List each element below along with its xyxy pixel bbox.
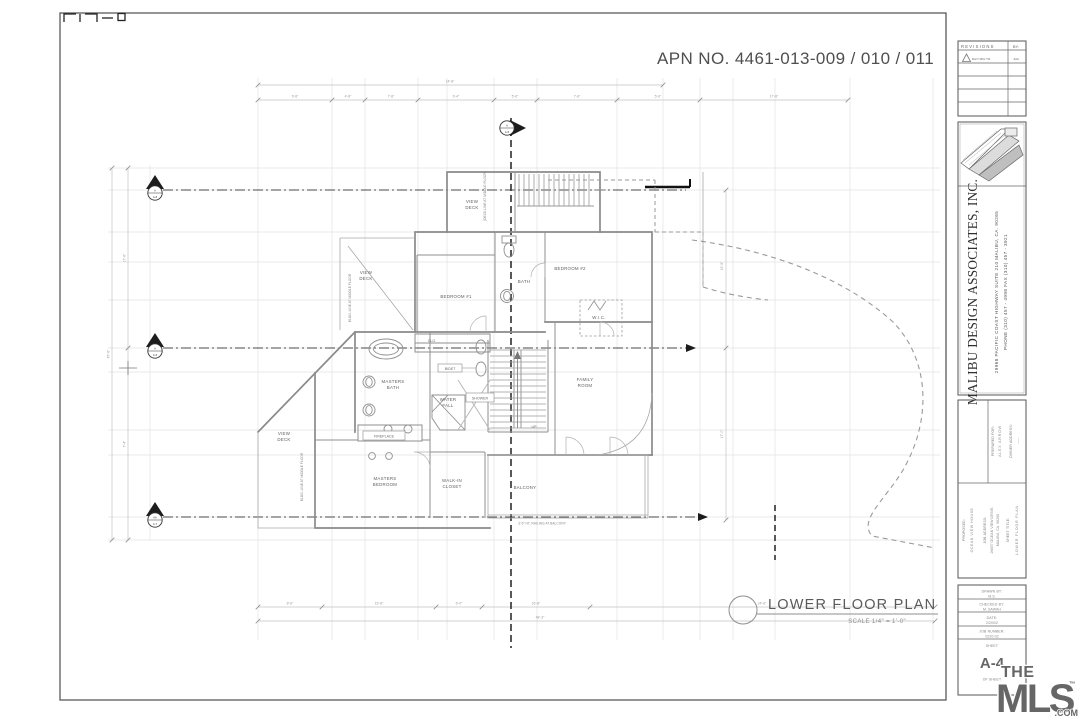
plan-scale: SCALE 1/4" = 1'-0" bbox=[848, 619, 906, 625]
owner-address-value: ----- bbox=[1016, 437, 1020, 444]
dim-right-2: 17'-0" bbox=[720, 429, 724, 438]
stairs-top bbox=[515, 172, 594, 232]
dim-bot-4: 16'-8" bbox=[532, 601, 541, 605]
dim-left-2: 7'-4" bbox=[123, 440, 127, 448]
center-cross bbox=[119, 361, 137, 375]
dim-bot-2: 15'-8" bbox=[375, 601, 384, 605]
label-masters-bath-a: MASTERS bbox=[382, 379, 405, 384]
section-marker-1: A A-8 bbox=[146, 175, 164, 200]
dim-top-overall: 14'-8" bbox=[446, 80, 455, 84]
drawn-by-value: M.S. bbox=[988, 595, 995, 599]
exterior-walls bbox=[258, 172, 652, 528]
label-balcony: BALCONY bbox=[514, 485, 537, 490]
dim-left-1: 17'-6" bbox=[123, 253, 127, 262]
label-bidet: BIDET bbox=[445, 367, 456, 371]
label-view-deck-3a: VIEW bbox=[278, 431, 291, 436]
note-bldg-line-2: BLDG. LINE AT MIDDLE FLOOR bbox=[300, 452, 304, 501]
job-number-value: 0220-02 bbox=[985, 635, 998, 639]
label-view-deck-1b: DECK bbox=[465, 205, 478, 210]
dim-bot-1: 8'-6" bbox=[287, 601, 295, 605]
dim-bottom-overall: 48'-3" bbox=[536, 615, 545, 619]
mls-logo-com: .COM bbox=[1055, 708, 1079, 718]
owner-address-label: OWNER ADDRESS: bbox=[1009, 424, 1013, 458]
label-walk-in-closet-b: CLOSET bbox=[442, 484, 461, 489]
marker1-letter: A bbox=[154, 189, 156, 193]
firm-logo-graphic bbox=[961, 128, 1023, 181]
dim-bot-3: 6'-0" bbox=[456, 601, 464, 605]
dim-top-3: 7'-8" bbox=[388, 94, 396, 98]
note-railing: 3'-6" HT. RAILING AT BALCONY bbox=[518, 522, 567, 526]
marker2-sheet: A-6 bbox=[153, 353, 158, 357]
marker3-sheet: A-7 bbox=[153, 522, 158, 526]
firm-phone: PHONE (310) 457 - 4998 FAX (310) 457 - 3… bbox=[1003, 234, 1008, 350]
revisions-table: REVISIONS BY: DAY/ MO/ YR JHA bbox=[958, 41, 1026, 116]
marker-top-sheet: A-5 bbox=[505, 130, 510, 134]
label-family-room-b: ROOM bbox=[578, 383, 593, 388]
dim-top-7: 5'-6" bbox=[655, 94, 663, 98]
stairs-middle bbox=[490, 350, 546, 428]
dim-top-2: 4'-8" bbox=[345, 94, 353, 98]
dim-top-4: 9'-4" bbox=[453, 94, 461, 98]
sheet-title-label: SHEET TITLE: bbox=[1006, 518, 1010, 543]
label-view-deck-2a: VIEW bbox=[360, 270, 373, 275]
revision-row1-by: JHA bbox=[1013, 57, 1019, 61]
dim-top-6: 7'-8" bbox=[574, 94, 582, 98]
marker2-letter: A bbox=[154, 347, 156, 351]
label-masters-bedroom-b: BEDROOM bbox=[373, 482, 398, 487]
firm-address: 29968 PACIFIC COAST HIGHWAY SUITE 210 MA… bbox=[994, 211, 999, 374]
revisions-by-header: BY: bbox=[1013, 44, 1019, 49]
revision-row1-date: DAY/ MO/ YR bbox=[972, 57, 991, 61]
stair-direction-arrow bbox=[514, 351, 521, 359]
label-view-deck-1a: VIEW bbox=[466, 199, 479, 204]
note-deck-line: (DECK LINE AT MIDDLE FLOOR) bbox=[483, 171, 487, 221]
label-bedroom-1: BEDROOM #1 bbox=[440, 294, 472, 299]
marker-top-letter: A bbox=[506, 124, 508, 128]
dim-top-5: 5'-6" bbox=[512, 94, 520, 98]
label-water-fall-a: WATER bbox=[440, 397, 457, 402]
date-value: 2/20/02 bbox=[986, 621, 998, 625]
section-marker-top: A A-5 bbox=[500, 120, 526, 136]
dimensions-top: 14'-8" 9'-8" 4'-8" 7'-8" 9'-4" 5'-6" 7'-… bbox=[256, 80, 851, 103]
drawing-sheet: APN NO. 4461-013-009 / 010 / 011 14'-8" … bbox=[0, 0, 1080, 720]
marker3-letter: AA bbox=[153, 516, 157, 520]
drawn-by-label: DRAWN BY: bbox=[982, 590, 1003, 594]
revisions-title: REVISIONS bbox=[961, 44, 995, 49]
dim-top-8: 17'-8" bbox=[770, 94, 779, 98]
mls-logo: THE MLS ™ .COM bbox=[996, 664, 1078, 720]
section-marker-3: AA A-7 bbox=[146, 502, 164, 527]
tag-boxes: FIREPLACE SHOWER BIDET bbox=[363, 364, 494, 440]
label-fireplace: FIREPLACE bbox=[374, 434, 395, 438]
label-wic: W.I.C. bbox=[592, 315, 605, 320]
label-view-deck-3b: DECK bbox=[277, 437, 290, 442]
site-dashed-lines bbox=[692, 240, 935, 548]
apn-number: APN NO. 4461-013-009 / 010 / 011 bbox=[657, 49, 934, 68]
clothes-rod-icon bbox=[588, 301, 606, 310]
prepared-for-label: PREPARED FOR: bbox=[991, 426, 995, 456]
label-up: UP bbox=[532, 425, 538, 429]
label-shower: SHOWER bbox=[472, 396, 489, 400]
label-family-room-a: FAMILY bbox=[577, 377, 594, 382]
section-marker-2: A A-6 bbox=[146, 333, 164, 358]
registration-marks bbox=[64, 14, 125, 23]
section-lines bbox=[163, 118, 708, 648]
dimensions-right: 15'-9" 17'-0" bbox=[720, 188, 728, 523]
proposed-value: OCEAN VIEW HOUSE bbox=[970, 508, 974, 553]
label-masters-bath-b: BATH bbox=[387, 385, 399, 390]
marker1-sheet: A-8 bbox=[153, 195, 158, 199]
prepared-for-value: ALEX ARROW bbox=[998, 425, 1002, 457]
label-bedroom-2: BEDROOM #2 bbox=[554, 266, 586, 271]
dim-right-1: 15'-9" bbox=[720, 261, 724, 270]
sheet-label: SHEET bbox=[986, 644, 998, 648]
dim-bot-5: 24'-6" bbox=[758, 601, 767, 605]
job-address-line1: 26657 OCEAN VIEW DRIVE, bbox=[990, 507, 994, 554]
project-block: PREPARED FOR: ALEX ARROW OWNER ADDRESS: … bbox=[958, 400, 1026, 578]
date-label: DATE: bbox=[987, 616, 998, 620]
water-fall-shower bbox=[432, 380, 490, 430]
dim-top-1: 9'-8" bbox=[292, 94, 300, 98]
room-labels: VIEW DECK VIEW DECK VIEW DECK BEDROOM #1… bbox=[277, 199, 605, 490]
label-masters-bedroom-a: MASTERS bbox=[374, 476, 397, 481]
job-address-label: JOB ADDRESS: bbox=[983, 516, 987, 543]
proposed-label: PROPOSED: bbox=[962, 519, 966, 541]
construction-lines bbox=[108, 78, 940, 640]
checked-by-value: M. SAWAH bbox=[983, 608, 1001, 612]
label-walk-in-closet-a: WALK-IN bbox=[442, 478, 462, 483]
label-clo: CLO. bbox=[428, 339, 436, 343]
dimensions-left: 47'-6" 17'-6" 7'-4" bbox=[107, 166, 138, 543]
checked-by-label: CHECKED BY: bbox=[980, 603, 1005, 607]
mls-logo-tm: ™ bbox=[1069, 681, 1076, 688]
dim-left-overall: 47'-6" bbox=[107, 349, 111, 358]
job-number-label: JOB NUMBER: bbox=[979, 630, 1004, 634]
revision-delta-icon bbox=[963, 54, 971, 62]
label-bath: BATH bbox=[518, 279, 530, 284]
firm-block: MALIBU DESIGN ASSOCIATES, INC. 29968 PAC… bbox=[958, 122, 1026, 405]
plan-title: LOWER FLOOR PLAN bbox=[768, 597, 936, 613]
label-view-deck-2b: DECK bbox=[359, 276, 372, 281]
sheet-title-value: LOWER FLOOR PLAN bbox=[1015, 505, 1019, 555]
job-address-line2: MALIBU, CA. 90265 bbox=[996, 514, 1000, 546]
note-bldg-line-1: BLDG. LINE AT MIDDLE FLOOR bbox=[348, 273, 352, 322]
label-water-fall-b: FALL bbox=[442, 403, 454, 408]
firm-name: MALIBU DESIGN ASSOCIATES, INC. bbox=[965, 179, 980, 405]
